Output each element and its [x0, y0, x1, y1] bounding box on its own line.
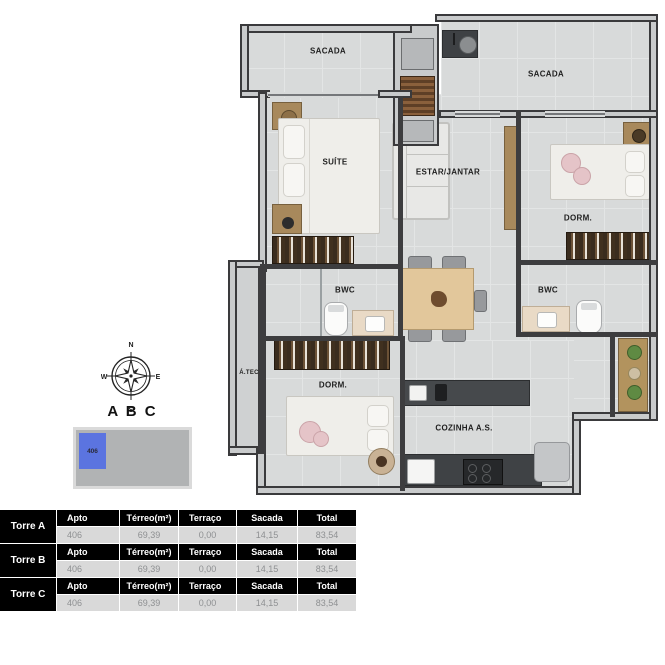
wall	[398, 96, 403, 339]
value-total: 83,54	[298, 595, 356, 611]
wall	[258, 266, 266, 454]
tower-name: Torre C	[0, 578, 56, 611]
col-header-terraco: Terraço	[179, 578, 236, 594]
value-terreo: 69,39	[120, 527, 178, 543]
value-terreo: 69,39	[120, 561, 178, 577]
floor-balcony-left	[246, 30, 410, 98]
wall	[572, 412, 581, 495]
kitchen-counter	[402, 454, 542, 486]
value-apto: 406	[57, 595, 119, 611]
value-apto: 406	[57, 527, 119, 543]
dining-chair	[442, 328, 466, 342]
col-header-total: Total	[298, 578, 356, 594]
value-terraco: 0,00	[179, 527, 236, 543]
col-header-sacada: Sacada	[237, 578, 297, 594]
table-group-torre-a: Torre A Apto Térreo(m²) Terraço Sacada T…	[0, 510, 356, 543]
wall	[649, 14, 658, 421]
balcony-door	[545, 111, 605, 117]
room-label-cozinha: COZINHA A.S.	[435, 424, 492, 433]
room-label-sacada-right: SACADA	[528, 70, 564, 79]
table-group-torre-b: Torre B Apto Térreo(m²) Terraço Sacada T…	[0, 544, 356, 577]
dining-table	[402, 268, 474, 330]
toilet	[576, 300, 602, 334]
suite-desk	[272, 204, 302, 234]
room-label-suite: SUÍTE	[322, 158, 347, 167]
floor-plan: SACADA SACADA SUÍTE ESTAR/JANTAR DORM. B…	[228, 14, 660, 500]
value-terraco: 0,00	[179, 561, 236, 577]
room-label-sacada-left: SACADA	[310, 47, 346, 56]
col-header-sacada: Sacada	[237, 510, 297, 526]
dorm-right-bed	[550, 144, 650, 200]
wall	[256, 486, 580, 495]
unit-406-highlight: 406	[79, 433, 106, 469]
col-header-terraco: Terraço	[179, 510, 236, 526]
col-header-total: Total	[298, 544, 356, 560]
wall	[400, 336, 405, 491]
balcony-door	[455, 111, 500, 117]
compass-west-label: W	[101, 374, 108, 381]
plant-shelf	[618, 338, 648, 412]
wall	[516, 332, 658, 337]
bathroom-vanity	[522, 306, 570, 332]
wall	[516, 110, 521, 265]
wall	[610, 332, 615, 417]
col-header-terreo: Térreo(m²)	[120, 578, 178, 594]
compass-east-label: E	[156, 374, 161, 381]
col-header-total: Total	[298, 510, 356, 526]
refrigerator	[534, 442, 570, 482]
balcony-door	[268, 92, 378, 97]
toilet	[324, 302, 348, 336]
dorm-right-wardrobe	[566, 232, 650, 260]
value-total: 83,54	[298, 527, 356, 543]
room-label-area-tecnica: Á.TEC	[239, 370, 259, 376]
wall	[516, 260, 521, 337]
wall	[516, 260, 658, 265]
room-label-bwc-left: BWC	[335, 286, 355, 295]
dining-chair	[408, 328, 432, 342]
suite-wardrobe	[272, 236, 354, 264]
col-header-apto: Apto	[57, 578, 119, 594]
wall	[240, 24, 412, 33]
dorm-bottom-side-table	[368, 448, 395, 475]
wall	[260, 336, 403, 341]
bathroom-vanity	[352, 310, 394, 336]
room-label-bwc-right: BWC	[538, 286, 558, 295]
wall	[240, 24, 249, 98]
col-header-apto: Apto	[57, 510, 119, 526]
value-terreo: 69,39	[120, 595, 178, 611]
room-label-dorm-bottom: DORM.	[319, 381, 347, 390]
wall	[435, 14, 658, 22]
building-footprint-key: 406	[73, 427, 192, 489]
room-label-dorm-right: DORM.	[564, 214, 592, 223]
col-header-apto: Apto	[57, 544, 119, 560]
shower-glass	[320, 266, 322, 336]
wall	[258, 92, 267, 272]
dining-chair	[474, 290, 487, 312]
wall	[378, 90, 412, 98]
value-sacada: 14,15	[237, 561, 297, 577]
value-apto: 406	[57, 561, 119, 577]
value-total: 83,54	[298, 561, 356, 577]
dorm-bottom-wardrobe	[274, 340, 390, 370]
building-footprint: 406	[76, 430, 189, 486]
compass-north-label: N	[128, 342, 133, 349]
areas-table: Torre A Apto Térreo(m²) Terraço Sacada T…	[0, 510, 356, 612]
kitchen-island	[402, 380, 530, 406]
wall	[228, 260, 237, 456]
wall	[572, 412, 658, 421]
col-header-terreo: Térreo(m²)	[120, 510, 178, 526]
tower-name: Torre B	[0, 544, 56, 577]
tower-name: Torre A	[0, 510, 56, 543]
col-header-terreo: Térreo(m²)	[120, 544, 178, 560]
table-group-torre-c: Torre C Apto Térreo(m²) Terraço Sacada T…	[0, 578, 356, 611]
wall	[260, 264, 403, 269]
value-sacada: 14,15	[237, 595, 297, 611]
col-header-sacada: Sacada	[237, 544, 297, 560]
dorm-bottom-bed	[286, 396, 394, 456]
room-label-estar-jantar: ESTAR/JANTAR	[416, 168, 480, 177]
value-sacada: 14,15	[237, 527, 297, 543]
col-header-terraco: Terraço	[179, 544, 236, 560]
towers-label: A B C	[73, 403, 192, 420]
balcony-sink	[442, 30, 478, 58]
value-terraco: 0,00	[179, 595, 236, 611]
